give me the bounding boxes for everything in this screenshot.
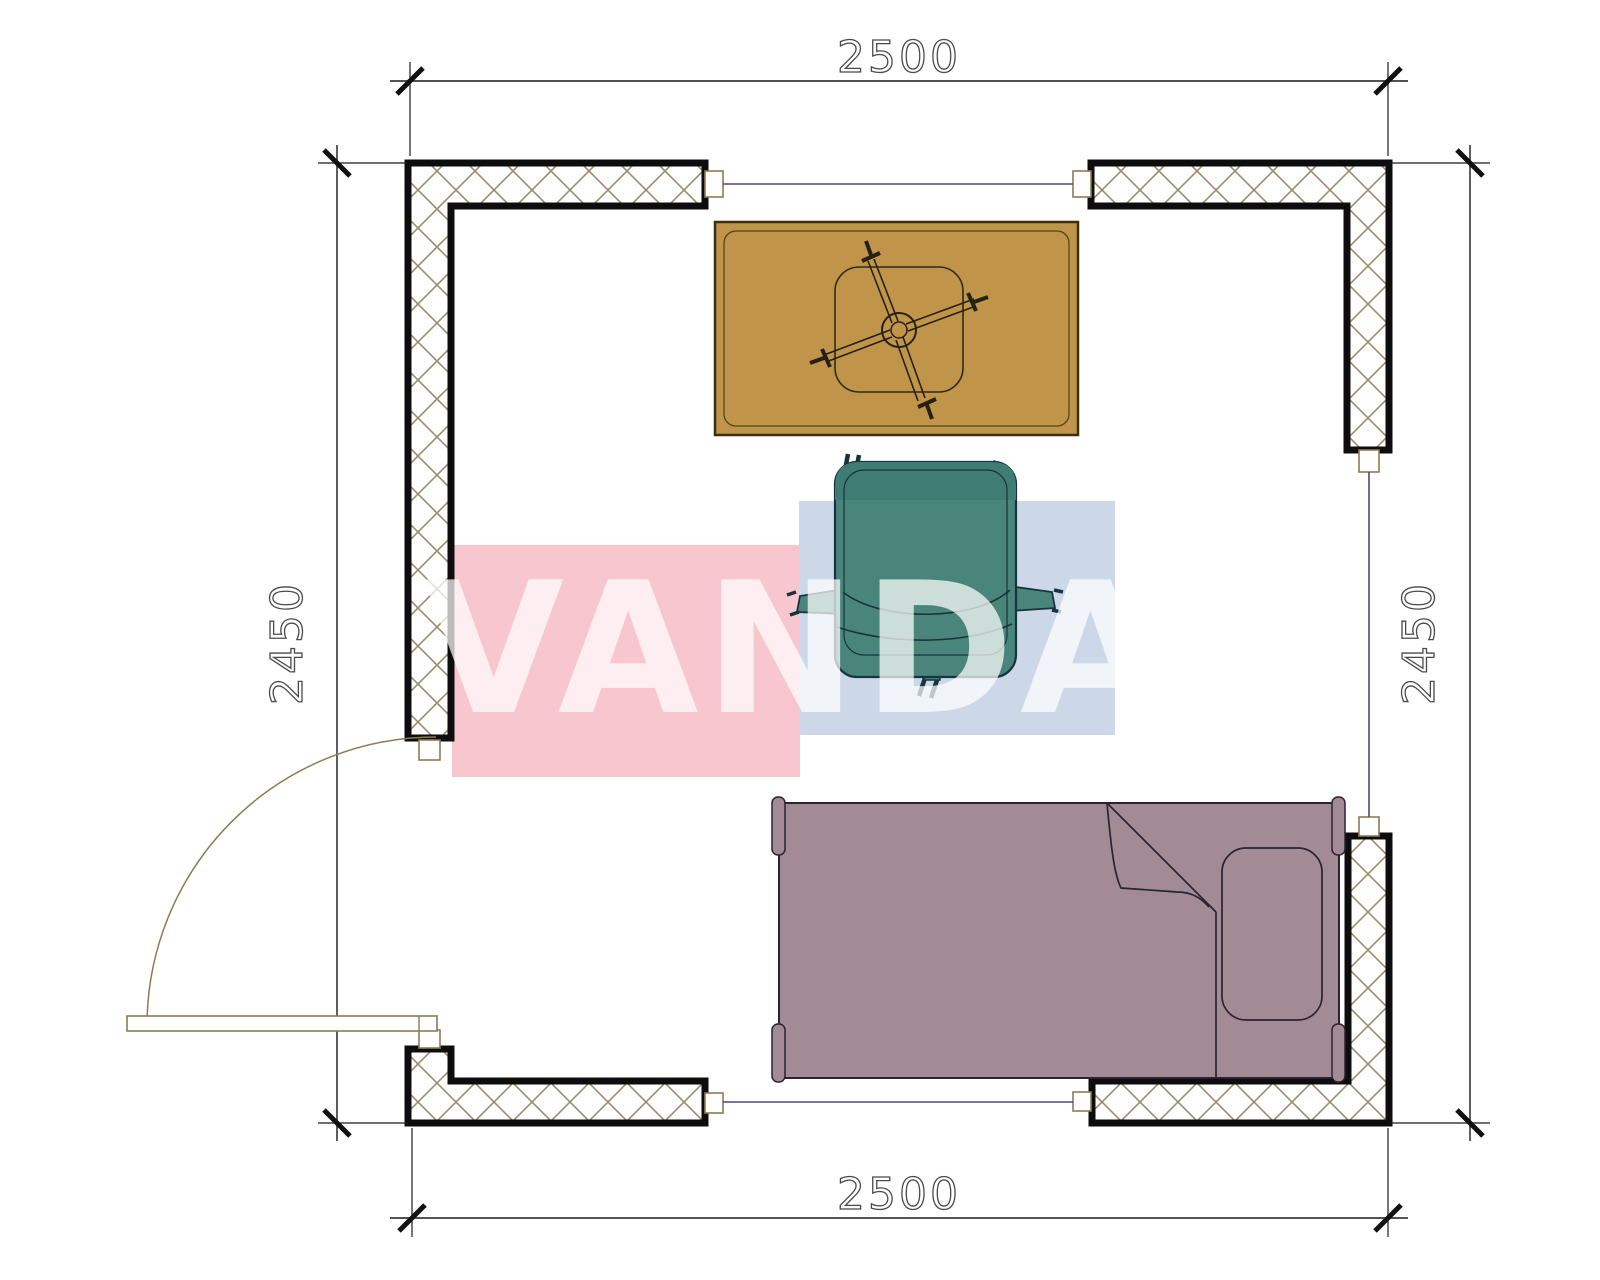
door [127, 737, 437, 1031]
bed-post [1332, 1024, 1345, 1082]
dim-label-bottom: 2500 [837, 1169, 961, 1220]
wall-connector [705, 1093, 723, 1113]
bed-post [1332, 797, 1345, 855]
wall-connector [1359, 450, 1379, 472]
bed-pillow [1222, 848, 1322, 1020]
watermark-text: VANDA [423, 543, 1167, 755]
floor-plan-svg: 2500 2500 2450 2450 [0, 0, 1600, 1280]
dim-label-left: 2450 [262, 581, 313, 705]
wall-connector [1359, 817, 1379, 836]
wall-connector [419, 1030, 440, 1048]
floor-plan-canvas: 2500 2500 2450 2450 [0, 0, 1600, 1280]
wall-connector [705, 171, 723, 197]
single-bed [772, 797, 1345, 1082]
door-leaf [127, 1016, 437, 1031]
dim-label-top: 2500 [837, 32, 961, 83]
bed-post [772, 1024, 785, 1082]
desk-table [715, 222, 1078, 435]
wall-connector [1073, 171, 1091, 197]
dim-label-right: 2450 [1394, 581, 1445, 705]
door-swing-arc [147, 737, 436, 1025]
wall-top-right-outline [1091, 163, 1389, 450]
table-top [715, 222, 1078, 435]
chair-headrest-band [835, 462, 1016, 500]
bed-post [772, 797, 785, 855]
wall-connector [1073, 1092, 1091, 1111]
